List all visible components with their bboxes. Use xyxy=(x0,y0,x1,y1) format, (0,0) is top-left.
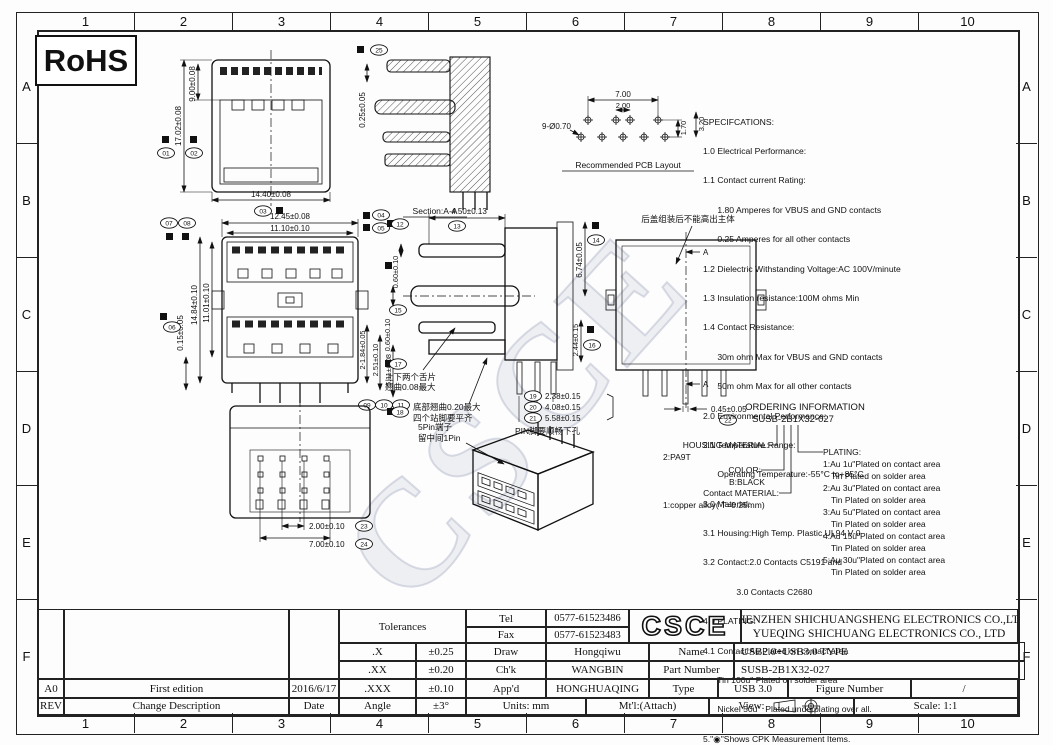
drawing-sheet: 1 2 3 4 5 6 7 8 9 10 1 2 3 4 5 6 7 8 9 1… xyxy=(0,0,1053,745)
zone-row: D xyxy=(16,371,37,485)
pcb-label: Recommended PCB Layout xyxy=(575,160,681,170)
plating-option: 1:Au 1u"Plated on contact area xyxy=(823,459,941,469)
name-label: Name xyxy=(648,642,735,662)
dim-6-74: 6.74±0.05 xyxy=(575,242,584,278)
projection-symbol-icon xyxy=(773,699,825,713)
tol-xxx-label: .XXX xyxy=(338,678,417,699)
note-5pin-1: 5Pin端子 xyxy=(418,422,453,432)
tol-angle-value: ±3° xyxy=(415,697,467,715)
draw-label: Draw xyxy=(465,642,547,662)
zone-row: C xyxy=(1016,257,1037,371)
dim-pcb-2: 2.00 xyxy=(616,101,631,110)
front-view: 17.02±0.08 9.00±0.08 01 02 14.40±0.08 03 xyxy=(150,48,345,220)
note-5pin-2: 留中间1Pin xyxy=(418,433,461,443)
callout-06: 06 xyxy=(164,322,181,332)
pin-grid xyxy=(256,456,329,509)
zone-col: 1 xyxy=(37,713,134,733)
color-label: COLOR: xyxy=(728,465,761,475)
housing-material-label: HOUSING MATERIAL: xyxy=(683,440,769,450)
spec-line: 1.1 Contact current Rating: xyxy=(703,176,1011,186)
dim-9-00: 9.00±0.08 xyxy=(188,66,197,102)
dim-pcb-7: 7.00 xyxy=(615,90,631,99)
zone-row: B xyxy=(16,143,37,257)
note-tongue-2: 翘曲0.08最大 xyxy=(385,382,436,392)
spec-line: 30m ohm Max for VBUS and GND contacts xyxy=(703,353,1011,363)
plating-label: PLATING: xyxy=(823,447,861,457)
company-logo: CSCE xyxy=(628,609,742,644)
rev-label: REV xyxy=(37,697,65,715)
callout-12: 12 xyxy=(392,219,409,229)
dim-4-50: 4.50±0.13 xyxy=(451,207,487,216)
svg-text:01: 01 xyxy=(162,150,170,157)
dim-pcb-170: 1.70 xyxy=(679,121,688,136)
note-bottom-1: 底部翘曲0.20最大 xyxy=(413,402,481,412)
ordering-information: ORDERING INFORMATION SUSB-2B1X32-027 HOU… xyxy=(655,400,1015,585)
tolerances-header: Tolerances xyxy=(338,609,467,644)
border-band-right: A B C D E F xyxy=(1016,30,1037,713)
zone-row: B xyxy=(1016,143,1037,257)
zone-col: 7 xyxy=(624,12,722,30)
zone-row: A xyxy=(1016,30,1037,143)
callout-25: 25 xyxy=(371,45,388,55)
tol-xxx-value: ±0.10 xyxy=(415,678,467,699)
approved-label: App'd xyxy=(465,678,547,699)
zone-row: E xyxy=(16,485,37,599)
dim-4-08: 4.08±0.15 xyxy=(545,403,581,412)
zone-col: 2 xyxy=(134,12,232,30)
spec-line: 0.25 Amperes for all other contacts xyxy=(703,235,1011,245)
zone-row: E xyxy=(1016,485,1037,599)
contact-material-value: 1:copper alloy( T=0.25mm) xyxy=(663,500,765,510)
section-view: 25 0.25±0.05 Section:A-A xyxy=(355,42,515,220)
dim-12-45: 12.45±0.08 xyxy=(270,212,311,221)
plating-option: Tin Plated on solder area xyxy=(831,471,926,481)
rohs-badge: RoHS xyxy=(35,35,137,86)
plating-option: Tin Plated on solder area xyxy=(831,567,926,577)
dim-0-15: 0.15±0.05 xyxy=(176,315,185,351)
svg-text:02: 02 xyxy=(190,150,198,157)
svg-text:13: 13 xyxy=(453,223,461,230)
dim-2-44: 2.44±0.15 xyxy=(571,324,580,356)
tol-angle-label: Angle xyxy=(338,697,417,715)
zone-col: 10 xyxy=(918,12,1016,30)
svg-text:06: 06 xyxy=(168,324,176,331)
dim-17-02: 17.02±0.08 xyxy=(174,105,183,146)
svg-text:20: 20 xyxy=(529,404,537,411)
dim-11-01: 11.01±0.10 xyxy=(202,283,211,323)
zone-col: 5 xyxy=(428,12,526,30)
plating-option: Tin Plated on solder area xyxy=(831,543,926,553)
dim-2-00: 2.00±0.10 xyxy=(309,522,345,531)
spec-line: 1.3 Insulation resistance:100M ohms Min xyxy=(703,294,1011,304)
callout-07: 07 xyxy=(161,218,178,228)
zone-col: 6 xyxy=(526,12,624,30)
name-value: USB2.0+USB3.0 TYPE xyxy=(733,642,1025,662)
iso-slots xyxy=(478,473,534,524)
svg-text:19: 19 xyxy=(529,393,537,400)
callout-01: 01 xyxy=(158,148,175,158)
zone-col: 6 xyxy=(526,713,624,733)
check-value: WANGBIN xyxy=(545,660,650,680)
units-cell: Units: mm xyxy=(465,697,587,715)
plating-option: 5:Au 30u"Plated on contact area xyxy=(823,555,945,565)
callout-02: 02 xyxy=(186,148,203,158)
zone-col: 4 xyxy=(330,12,428,30)
zone-col: 8 xyxy=(722,12,820,30)
dim-14-84: 14.84±0.10 xyxy=(190,284,199,325)
svg-text:12: 12 xyxy=(396,221,404,228)
callout-19: 19 xyxy=(525,391,542,401)
tol-xx-label: .XX xyxy=(338,660,417,680)
spec-line: 1.2 Dielectric Withstanding Voltage:AC 1… xyxy=(703,265,1011,275)
company-line-2: YUEQING SHICHUANG ELECTRONICS CO., LTD xyxy=(753,627,1006,641)
zone-col: 3 xyxy=(232,12,330,30)
border-band-left: A B C D E F xyxy=(16,30,37,713)
housing-material-value: 2:PA9T xyxy=(663,452,691,462)
check-label: Ch'k xyxy=(465,660,547,680)
border-band-top: 1 2 3 4 5 6 7 8 9 10 xyxy=(37,12,1016,30)
tol-x-value: ±0.25 xyxy=(415,642,467,662)
rev-empty-cell xyxy=(63,609,290,680)
rev-description: First edition xyxy=(63,678,290,699)
rev-empty-cell xyxy=(288,609,340,680)
spec-line: 1.4 Contact Resistance: xyxy=(703,323,1011,333)
stacked-front-view: 12.45±0.08 11.10±0.10 04 05 07 08 14.84±… xyxy=(160,205,406,413)
spec-line: SPECIFCATIONS: xyxy=(703,118,1011,128)
zone-col: 9 xyxy=(820,12,918,30)
dim-7-00: 7.00±0.10 xyxy=(309,540,345,549)
spec-line: 3.0 Contacts C2680 xyxy=(703,588,1011,598)
callout-17: 17 xyxy=(390,359,407,369)
company-names: SHENZHEN SHICHUANGSHENG ELECTRONICS CO.,… xyxy=(740,609,1018,644)
color-value: B:BLACK xyxy=(729,477,765,487)
svg-text:17: 17 xyxy=(394,361,402,368)
plating-option: 3:Au 5u"Plated on contact area xyxy=(823,507,941,517)
rev-date: 2016/6/17 xyxy=(288,678,340,699)
view-cell: View: xyxy=(708,697,855,715)
type-value: USB 3.0 xyxy=(717,678,789,699)
dim-0-60a: 0.60±0.10 xyxy=(391,256,400,288)
rev-empty-cell xyxy=(37,609,65,680)
part-number-label: Part Number xyxy=(648,660,735,680)
svg-text:24: 24 xyxy=(360,541,368,548)
figure-number-value: / xyxy=(910,678,1018,699)
view-label: View: xyxy=(738,700,764,712)
note-tongue-1: 上下两个舌片 xyxy=(385,372,436,382)
dim-2-51: 2.51±0.10 xyxy=(371,344,380,376)
svg-text:05: 05 xyxy=(377,225,385,232)
bottom-view: 2.00±0.10 23 7.00±0.10 24 xyxy=(212,398,387,550)
svg-text:25: 25 xyxy=(375,47,383,54)
figure-number-label: Figure Number xyxy=(787,678,912,699)
svg-text:04: 04 xyxy=(377,212,385,219)
callout-15: 15 xyxy=(390,305,407,315)
callout-23: 23 xyxy=(356,521,373,531)
svg-text:15: 15 xyxy=(394,307,402,314)
material-cell: Mt'l:(Attach) xyxy=(585,697,710,715)
contact-material-label: Contact MATERIAL: xyxy=(703,488,779,498)
zone-col: 4 xyxy=(330,713,428,733)
dim-0-60b: 0.60±0.10 xyxy=(383,319,392,351)
spec-line: 50m ohm Max for all other contacts xyxy=(703,382,1011,392)
dim-2-184: 2-1.84±0.05 xyxy=(358,331,367,370)
callout-24: 24 xyxy=(356,539,373,549)
dim-0-25: 0.25±0.05 xyxy=(358,92,367,128)
ordering-tree-lines xyxy=(761,425,823,493)
zone-col: 5 xyxy=(428,713,526,733)
type-label: Type xyxy=(648,678,719,699)
tol-x-label: .X xyxy=(338,642,417,662)
svg-text:23: 23 xyxy=(360,523,368,530)
callout-20: 20 xyxy=(525,402,542,412)
dim-14-40: 14.40±0.08 xyxy=(251,190,292,199)
approved-value: HONGHUAQING xyxy=(545,678,650,699)
callout-08: 08 xyxy=(179,218,196,228)
ordering-part-number: SUSB-2B1X32-027 xyxy=(752,414,834,425)
dim-2-38: 2.38±0.15 xyxy=(545,392,581,401)
plating-option: 2:Au 3u"Plated on contact area xyxy=(823,483,941,493)
ordering-title: ORDERING INFORMATION xyxy=(745,402,865,413)
draw-value: Hongqiwu xyxy=(545,642,650,662)
company-line-1: SHENZHEN SHICHUANGSHENG ELECTRONICS CO.,… xyxy=(740,613,1018,627)
date-label: Date xyxy=(288,697,340,715)
change-description-label: Change Description xyxy=(63,697,290,715)
svg-text:07: 07 xyxy=(165,220,173,227)
scale-cell: Scale: 1:1 xyxy=(853,697,1018,715)
pcb-holes xyxy=(576,115,670,142)
svg-text:08: 08 xyxy=(183,220,191,227)
zone-row: D xyxy=(1016,371,1037,485)
pcb-layout: 7.00 2.00 1.70 3.20 9-Ø0.70 Recommended … xyxy=(540,82,720,187)
zone-col: 1 xyxy=(37,12,134,30)
dim-pcb-hole: 9-Ø0.70 xyxy=(542,122,571,131)
plating-option: Tin Plated on solder area xyxy=(831,495,926,505)
callout-13: 13 xyxy=(449,221,466,231)
isometric-view: 5Pin端子 留中间1Pin xyxy=(378,412,618,572)
plating-option: Tin Plated on solder area xyxy=(831,519,926,529)
part-number-value: SUSB-2B1X32-027 xyxy=(733,660,1025,680)
spec-line: 5."◉"Shows CPK Measurement Items. xyxy=(703,735,1011,745)
zone-col: 3 xyxy=(232,713,330,733)
title-block: A0 First edition 2016/6/17 REV Change De… xyxy=(37,609,1016,713)
zone-row: C xyxy=(16,257,37,371)
spec-line: 1.80 Amperes for VBUS and GND contacts xyxy=(703,206,1011,216)
zone-row: A xyxy=(16,30,37,143)
tol-xx-value: ±0.20 xyxy=(415,660,467,680)
zone-col: 2 xyxy=(134,713,232,733)
zone-row: F xyxy=(16,599,37,713)
plating-option: 4:Au 15u"Plated on contact area xyxy=(823,531,945,541)
rev-id: A0 xyxy=(37,678,65,699)
spec-line: 1.0 Electrical Performance: xyxy=(703,147,1011,157)
dim-11-10: 11.10±0.10 xyxy=(270,224,310,233)
